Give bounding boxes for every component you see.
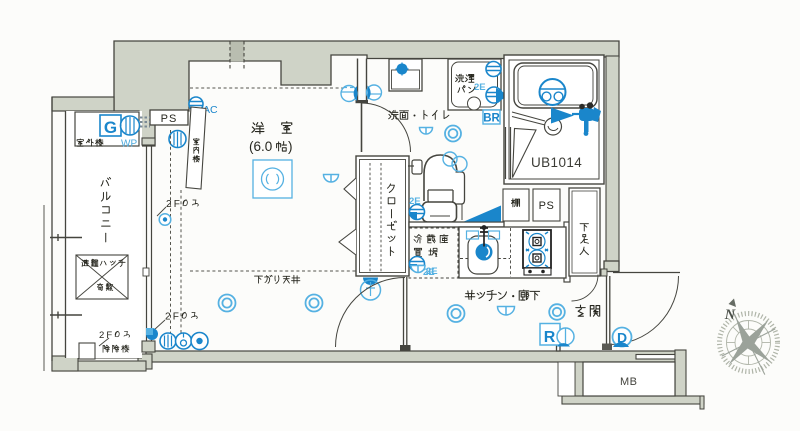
svg-text:N: N — [724, 307, 736, 323]
svg-text:PS: PS — [161, 113, 178, 125]
svg-text:): ) — [288, 139, 293, 154]
svg-text:PS: PS — [539, 200, 555, 212]
svg-text:UB1014: UB1014 — [531, 155, 582, 170]
svg-text:F: F — [174, 199, 180, 210]
svg-text:2: 2 — [99, 330, 104, 341]
svg-text:2: 2 — [166, 199, 172, 210]
svg-text:BR: BR — [483, 113, 500, 125]
svg-text:G: G — [104, 118, 117, 137]
svg-text:F: F — [173, 311, 179, 322]
svg-text:WP: WP — [121, 139, 137, 150]
svg-text:2: 2 — [165, 311, 171, 322]
svg-text:R: R — [544, 329, 556, 346]
svg-text:MB: MB — [620, 376, 638, 388]
svg-text:2E: 2E — [426, 266, 438, 277]
svg-text:2E: 2E — [474, 82, 486, 93]
svg-text:2E: 2E — [409, 196, 421, 207]
svg-text:(6.0: (6.0 — [249, 139, 272, 154]
